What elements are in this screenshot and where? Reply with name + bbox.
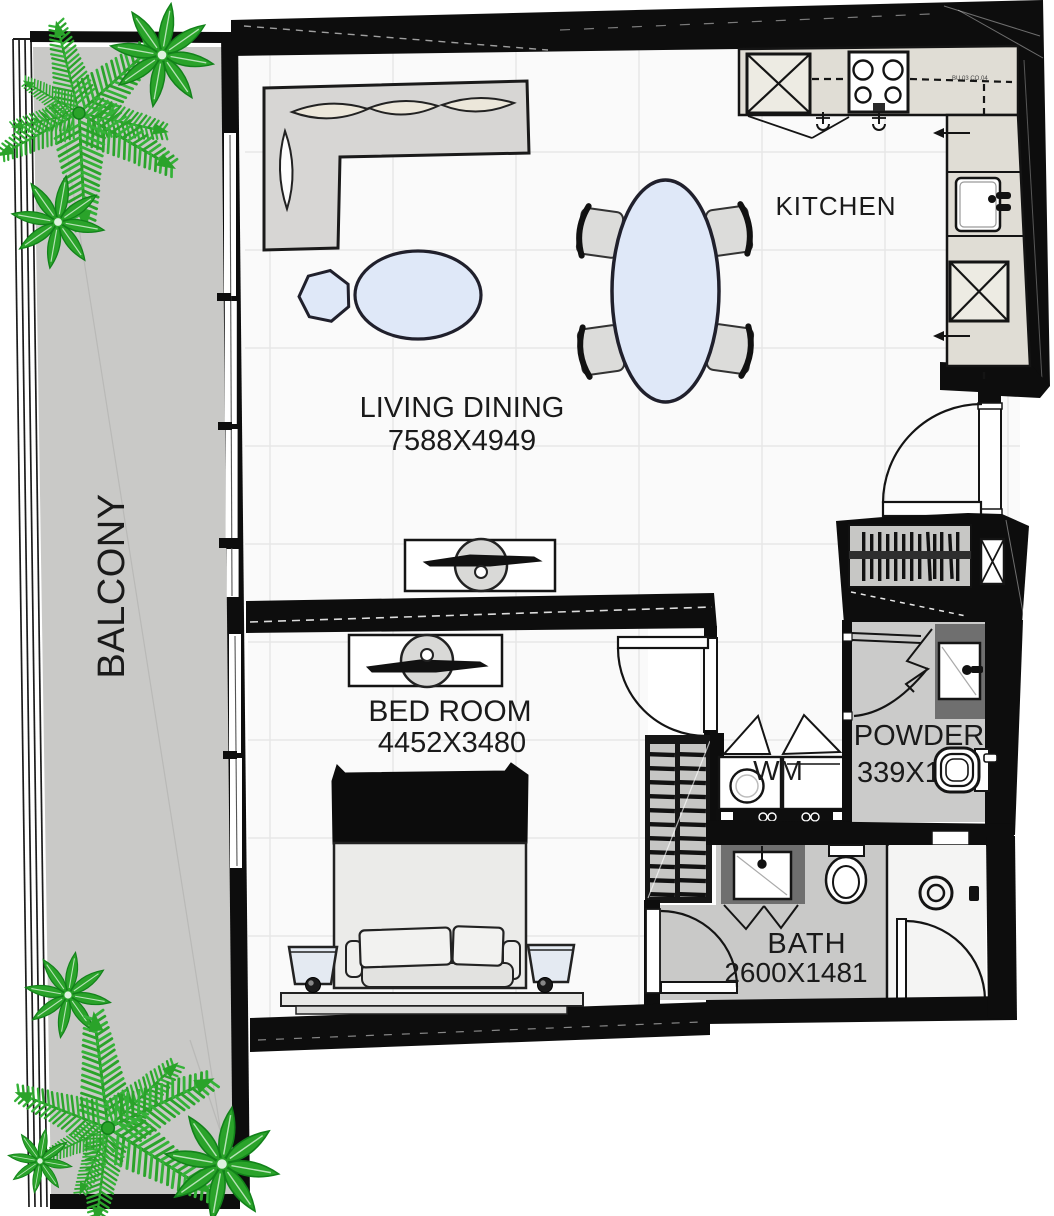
svg-text:BALCONY: BALCONY <box>91 493 133 678</box>
svg-text:KITCHEN: KITCHEN <box>775 191 896 221</box>
svg-text:BATH: BATH <box>767 928 846 960</box>
svg-text:WM: WM <box>753 755 803 786</box>
svg-text:LIVING DINING: LIVING DINING <box>360 392 565 424</box>
svg-text:BU.03 CO.04: BU.03 CO.04 <box>952 76 988 82</box>
svg-text:7588X4949: 7588X4949 <box>388 425 536 457</box>
svg-text:2600X1481: 2600X1481 <box>724 957 867 988</box>
svg-text:4452X3480: 4452X3480 <box>378 727 526 759</box>
svg-text:BED ROOM: BED ROOM <box>368 695 531 728</box>
